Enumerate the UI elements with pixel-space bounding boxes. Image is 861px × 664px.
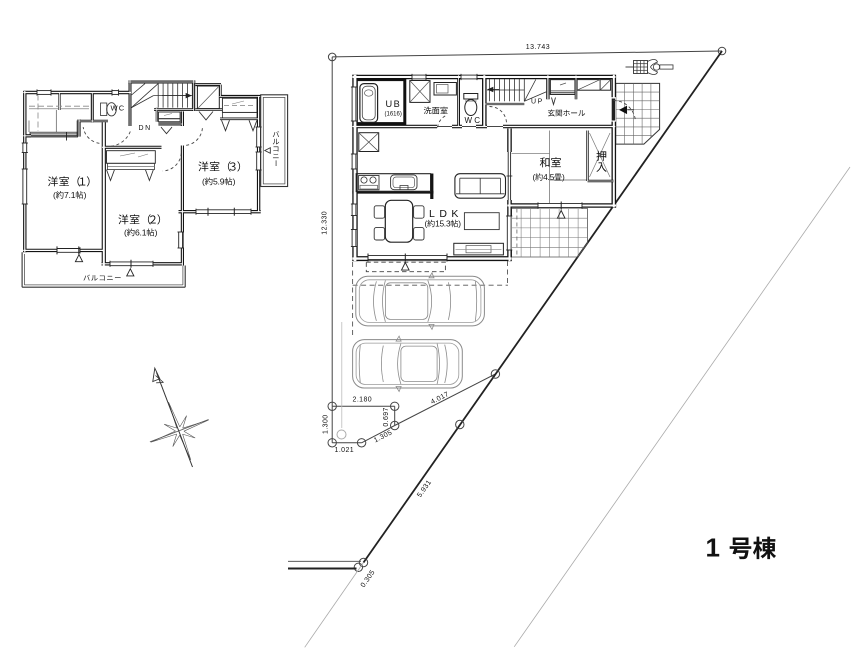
svg-text:WC: WC	[465, 116, 483, 125]
svg-text:3: 3	[446, 219, 451, 229]
svg-text:(1616): (1616)	[385, 112, 402, 118]
svg-text:1: 1	[706, 533, 720, 563]
svg-text:1: 1	[71, 190, 76, 200]
svg-text:1: 1	[142, 228, 147, 238]
svg-text:(: (	[53, 190, 56, 200]
svg-text:1.021: 1.021	[335, 447, 355, 454]
svg-text:9: 9	[220, 177, 225, 187]
svg-text:(: (	[425, 219, 428, 229]
svg-text:UP: UP	[531, 98, 544, 105]
svg-text:13.743: 13.743	[526, 44, 550, 51]
svg-text:): )	[458, 219, 461, 229]
svg-text:DN: DN	[139, 125, 152, 132]
svg-text:(: (	[124, 228, 127, 238]
svg-text:): )	[562, 172, 565, 182]
svg-text:WC: WC	[111, 104, 126, 113]
svg-text:0.697: 0.697	[383, 407, 390, 427]
svg-text:): )	[155, 228, 158, 238]
svg-text:1.300: 1.300	[323, 414, 330, 434]
svg-text:2.180: 2.180	[353, 397, 373, 404]
svg-text:): )	[233, 177, 236, 187]
svg-text:(: (	[533, 172, 536, 182]
svg-text:UB: UB	[386, 99, 402, 109]
svg-text:5: 5	[550, 172, 555, 182]
svg-text:12.330: 12.330	[322, 211, 329, 235]
svg-text:): )	[84, 190, 87, 200]
svg-text:(: (	[202, 177, 205, 187]
